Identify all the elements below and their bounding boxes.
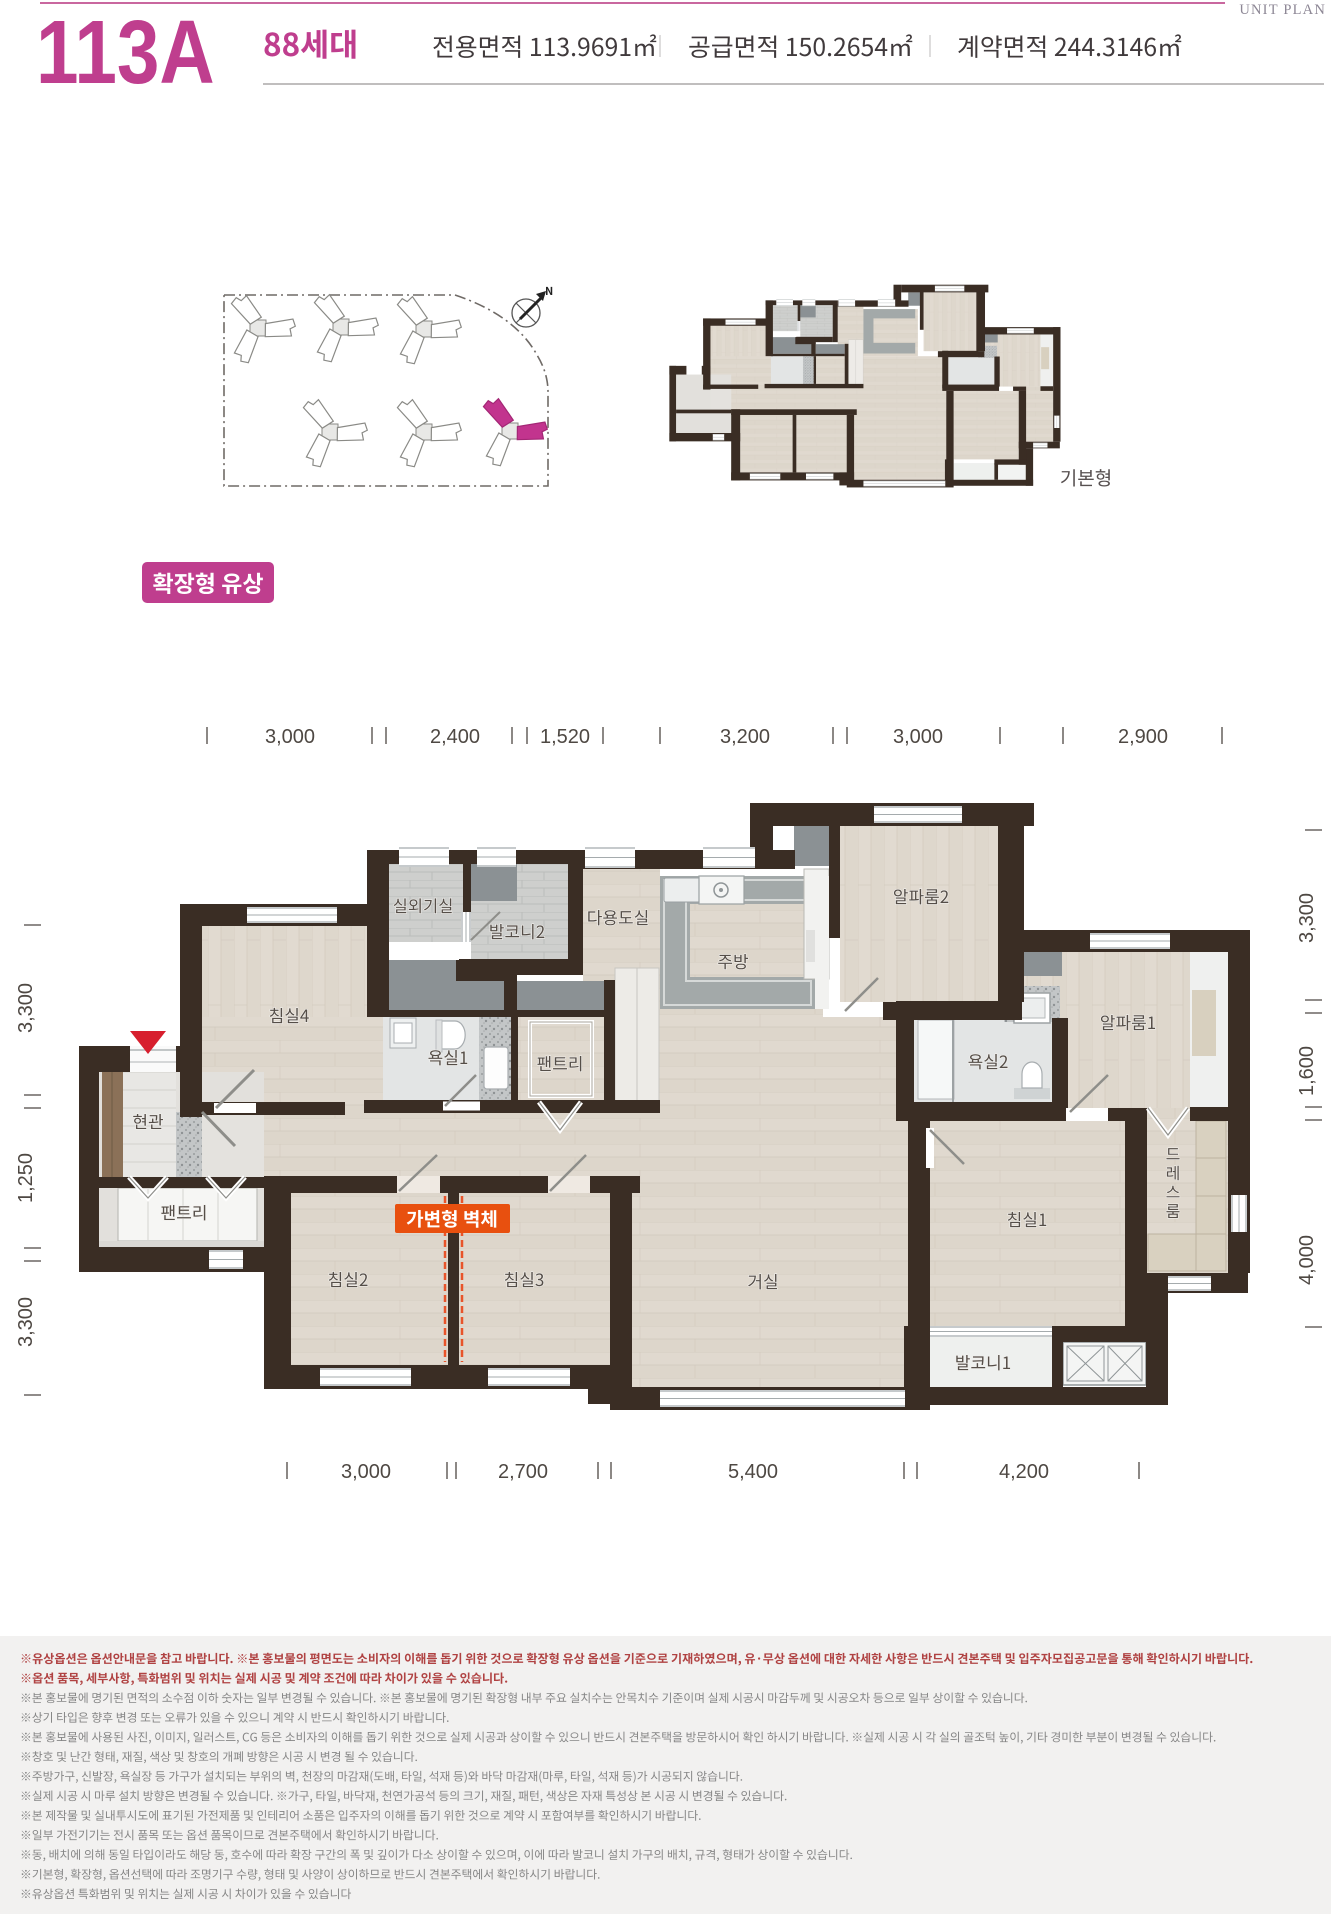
svg-text:UNIT PLAN: UNIT PLAN xyxy=(1239,2,1326,18)
svg-text:2,900: 2,900 xyxy=(1118,726,1168,748)
svg-text:1,250: 1,250 xyxy=(15,1153,37,1203)
svg-text:4,200: 4,200 xyxy=(999,1461,1049,1483)
svg-text:3,300: 3,300 xyxy=(1296,893,1318,943)
svg-text:4,000: 4,000 xyxy=(1296,1235,1318,1285)
svg-text:1,520: 1,520 xyxy=(540,726,590,748)
svg-text:1,600: 1,600 xyxy=(1296,1046,1318,1096)
svg-text:113A: 113A xyxy=(36,1,215,102)
svg-text:2,700: 2,700 xyxy=(498,1461,548,1483)
svg-text:3,000: 3,000 xyxy=(265,726,315,748)
svg-text:5,400: 5,400 xyxy=(728,1461,778,1483)
svg-text:3,200: 3,200 xyxy=(720,726,770,748)
svg-text:2,400: 2,400 xyxy=(430,726,480,748)
svg-text:3,300: 3,300 xyxy=(15,983,37,1033)
svg-text:3,000: 3,000 xyxy=(893,726,943,748)
svg-text:3,300: 3,300 xyxy=(15,1297,37,1347)
svg-text:3,000: 3,000 xyxy=(341,1461,391,1483)
